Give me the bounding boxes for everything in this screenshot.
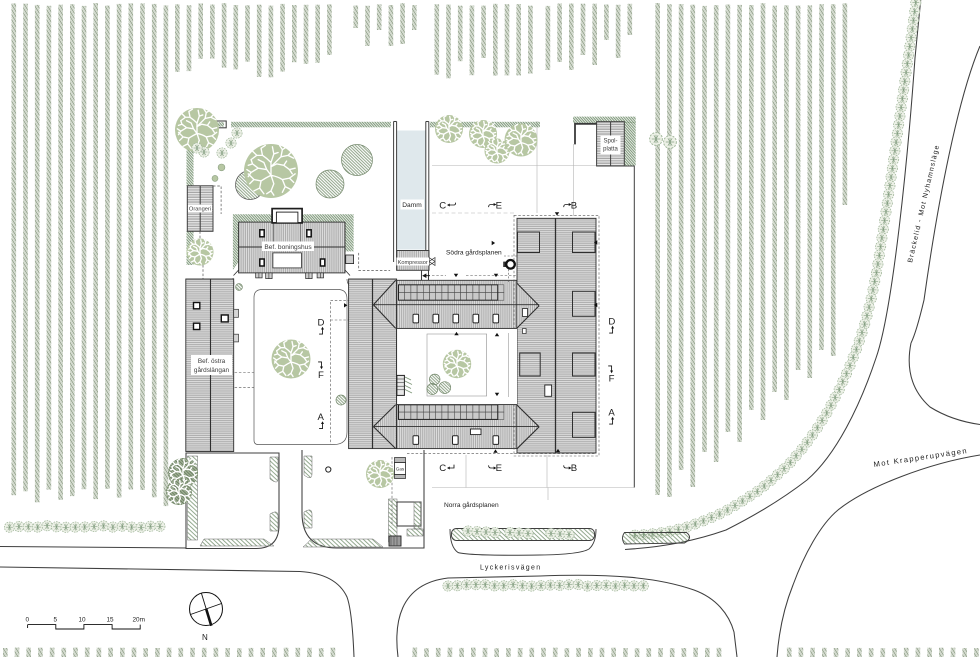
svg-text:F: F bbox=[609, 373, 615, 384]
svg-text:Damm: Damm bbox=[402, 202, 422, 209]
svg-text:Orangeri: Orangeri bbox=[189, 206, 211, 212]
svg-text:A: A bbox=[318, 412, 325, 423]
svg-text:A: A bbox=[608, 407, 615, 418]
svg-text:Lyckerisvägen: Lyckerisvägen bbox=[480, 565, 541, 572]
svg-text:Norra gårdsplanen: Norra gårdsplanen bbox=[444, 501, 499, 509]
svg-text:N: N bbox=[202, 633, 208, 642]
svg-text:E: E bbox=[496, 201, 502, 212]
svg-text:E: E bbox=[496, 463, 502, 474]
svg-text:B: B bbox=[571, 463, 577, 474]
svg-text:0: 0 bbox=[26, 617, 30, 624]
svg-text:C: C bbox=[439, 463, 446, 474]
svg-text:gårdslängan: gårdslängan bbox=[194, 366, 230, 374]
svg-text:C: C bbox=[439, 201, 446, 212]
svg-text:Bef. boningshus: Bef. boningshus bbox=[264, 244, 312, 251]
svg-text:Bef. östra: Bef. östra bbox=[198, 358, 226, 365]
svg-text:Gas: Gas bbox=[396, 467, 405, 472]
svg-text:D: D bbox=[608, 316, 615, 327]
svg-text:10: 10 bbox=[79, 617, 87, 624]
svg-text:platta: platta bbox=[603, 147, 618, 153]
svg-text:B: B bbox=[571, 201, 577, 212]
svg-text:5: 5 bbox=[54, 617, 58, 624]
svg-text:Kompressor: Kompressor bbox=[398, 260, 428, 266]
svg-text:F: F bbox=[318, 370, 324, 381]
svg-text:Södra gårdsplanen: Södra gårdsplanen bbox=[446, 249, 502, 257]
svg-text:20m: 20m bbox=[133, 617, 145, 624]
svg-text:15: 15 bbox=[107, 617, 115, 624]
svg-text:D: D bbox=[318, 317, 325, 328]
svg-text:Spol-: Spol- bbox=[603, 139, 617, 145]
